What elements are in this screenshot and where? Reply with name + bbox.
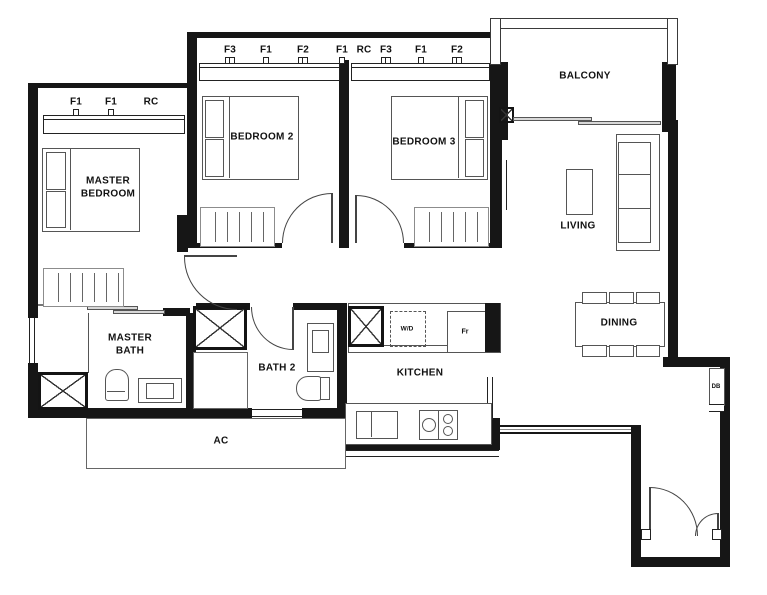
label-washer-dryer: W/D [401, 326, 414, 333]
ceiling-marker [298, 57, 308, 64]
dining-chair [609, 345, 634, 357]
kitchen-sink-divider [371, 411, 372, 437]
hob-burner-large [422, 418, 436, 432]
dining-chair [582, 345, 607, 357]
ceiling-marker [418, 57, 424, 64]
entrance-jamb-left [641, 529, 651, 540]
sliding-door-balcony-2 [578, 121, 661, 125]
door-arc-bedroom2 [282, 193, 332, 243]
bath2-toilet-tank [320, 377, 330, 400]
ceiling-marker [452, 57, 462, 64]
ceiling-label: F1 [105, 97, 117, 108]
label-dining: DINING [601, 318, 638, 329]
wall-bedroom2-bedroom3 [339, 60, 349, 248]
bath2-sink-basin [312, 330, 329, 353]
label-fridge: Fr [462, 329, 469, 336]
door-arc-entrance-main [650, 487, 698, 536]
balcony-rail-top [490, 18, 678, 29]
masterbath-toilet [105, 369, 129, 401]
db-closet-lines [709, 404, 724, 412]
bed-master-pillow-1 [46, 152, 66, 190]
ceiling-label: F3 [224, 45, 236, 56]
wardrobe-rail [47, 273, 120, 302]
shaft-bath2 [193, 306, 247, 350]
sofa-seat-divider [619, 174, 650, 175]
wardrobe-master [43, 268, 124, 307]
wall-bottom-mid [302, 408, 347, 418]
shaft-balcony-ac [499, 107, 514, 123]
bed-bedroom3-pillow-2 [465, 139, 484, 177]
ceiling-marker [73, 109, 79, 116]
ceiling-label: F1 [70, 97, 82, 108]
door-arc-bath2 [251, 307, 293, 350]
wall-master-door-jamb [177, 215, 188, 252]
label-master-bath-line1: MASTER [108, 333, 152, 344]
masterbath-sink-basin [146, 383, 174, 399]
shaft-kitchen [348, 306, 384, 347]
ceiling-label: F1 [415, 45, 427, 56]
ledge-below-kitchen [345, 450, 499, 457]
dining-chair [636, 292, 660, 304]
bed-bedroom3-headboard-line [458, 96, 459, 178]
ceiling-marker [263, 57, 269, 64]
label-bedroom3: BEDROOM 3 [392, 137, 455, 148]
wall-left-upper [28, 83, 38, 318]
ceiling-label: F3 [380, 45, 392, 56]
label-bedroom2: BEDROOM 2 [230, 132, 293, 143]
coffee-table [566, 169, 593, 215]
door-leaf-bedroom3 [355, 195, 357, 243]
ceiling-label: F1 [336, 45, 348, 56]
wall-kitchen-pillar-top-overlay [485, 303, 500, 352]
balcony-rail-right [667, 18, 678, 65]
entrance-jamb-right [712, 529, 722, 540]
ceiling-label: F2 [451, 45, 463, 56]
masterbath-step-line [88, 313, 89, 373]
ceiling-marker [381, 57, 391, 64]
wardrobe-rail [418, 212, 485, 242]
masterbath-toilet-line [107, 391, 125, 392]
bed-master-pillow-2 [46, 191, 66, 228]
label-master-bath-line2: BATH [116, 346, 144, 357]
label-master-bedroom-line2: BEDROOM [81, 189, 135, 200]
door-leaf-bedroom2 [331, 193, 333, 243]
wall-top [187, 32, 490, 38]
window-master-bedroom [43, 115, 185, 134]
wall-master-top [34, 83, 187, 88]
sofa-seats [618, 142, 651, 243]
door-leaf-master-bedroom [184, 255, 237, 257]
kitchen-counter-line [384, 345, 447, 346]
wall-corridor-window [500, 425, 631, 434]
wall-balcony-right [662, 62, 676, 132]
hob-burner-small [443, 414, 453, 424]
label-master-bedroom-line1: MASTER [86, 176, 130, 187]
bed-bedroom2-pillow-2 [205, 139, 224, 177]
wall-pillar-master-bedroom2 [187, 32, 197, 248]
ceiling-label: F2 [297, 45, 309, 56]
bed-bedroom2-pillow-1 [205, 100, 224, 138]
door-arc-bedroom3 [356, 195, 404, 243]
ceiling-marker [339, 57, 345, 64]
window-bedroom2 [199, 63, 340, 81]
dining-chair [609, 292, 634, 304]
window-bedroom3 [351, 63, 490, 81]
floor-plan: MASTER BEDROOM BEDROOM 2 BEDROOM 3 BALCO… [0, 0, 767, 595]
bath2-shower [193, 352, 248, 409]
ceiling-label: RC [357, 45, 372, 56]
ceiling-label: RC [144, 97, 159, 108]
sofa-seat-divider [619, 208, 650, 209]
wardrobe-rail [204, 212, 271, 242]
label-distribution-board: DB [712, 384, 721, 390]
wall-foyer-bottom [631, 557, 730, 567]
door-arc-master-bedroom [184, 257, 237, 310]
sliding-door-master-bath-2 [113, 310, 165, 314]
bed-master-headboard-line [70, 148, 71, 230]
kitchen-sink [356, 411, 398, 439]
ceiling-marker [108, 109, 114, 116]
label-living: LIVING [560, 221, 595, 232]
label-ac-ledge: AC [213, 436, 228, 447]
dining-chair [636, 345, 660, 357]
hob-burner-small [443, 426, 453, 436]
label-balcony: BALCONY [559, 71, 611, 82]
label-kitchen: KITCHEN [397, 368, 444, 379]
balcony-rail-left [490, 18, 501, 65]
wardrobe-bedroom3 [414, 207, 489, 247]
ceiling-marker [225, 57, 235, 64]
label-bath2: BATH 2 [258, 363, 295, 374]
wall-balcony-left [492, 62, 508, 140]
door-leaf-bath2 [292, 307, 294, 350]
wall-dining-right [668, 120, 678, 362]
bed-bedroom3-pillow-1 [465, 100, 484, 138]
bath2-toilet-bowl [296, 376, 322, 401]
window-bath2-bottom [252, 409, 302, 417]
window-left-master-bath [29, 318, 35, 363]
wall-bath2-right [337, 303, 347, 418]
shaft-master-bath [38, 372, 88, 410]
wardrobe-bedroom2 [200, 207, 275, 247]
window-living-left [501, 160, 507, 210]
ceiling-label: F1 [260, 45, 272, 56]
dining-chair [582, 292, 607, 304]
wall-foyer-left [631, 425, 641, 567]
